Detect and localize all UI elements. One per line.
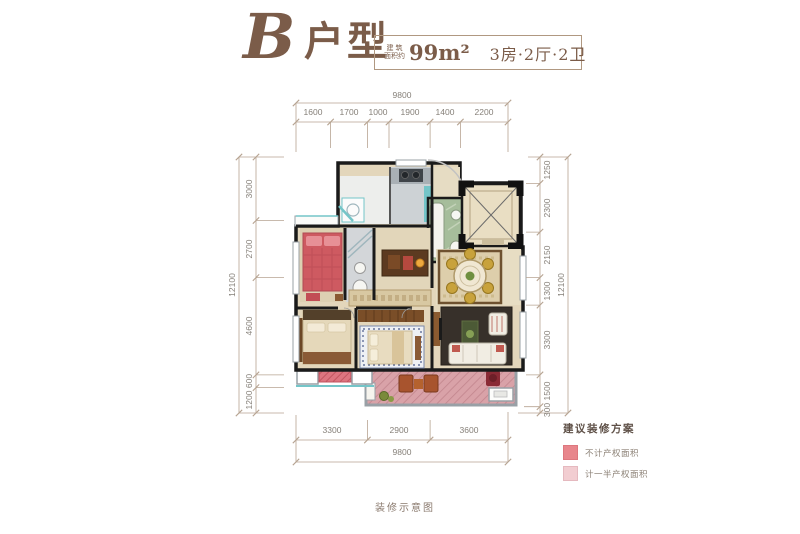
dim-top-seg: 2200 [466,107,502,117]
dim-top-seg: 1000 [360,107,396,117]
dim-right-seg: 3300 [542,320,552,360]
dim-top-total: 9800 [382,90,422,100]
dim-top-seg: 1900 [392,107,428,117]
bedroom-3 [358,310,424,368]
dim-right-total: 12100 [556,260,566,310]
no-property-area [319,371,351,382]
dim-left-seg: 1200 [244,380,254,420]
exterior-windows-and-flower-bed [296,371,374,386]
dim-bottom-seg: 2900 [381,425,417,435]
no-property-area-swatch [563,445,578,460]
dim-top-seg: 1600 [295,107,331,117]
plan-caption: 装修示意图 [345,499,465,514]
dim-bottom-total: 9800 [382,447,422,457]
legend-item: 不计产权面积 [563,445,648,460]
dim-left-total: 12100 [227,260,237,310]
legend-title: 建议装修方案 [563,421,648,436]
study [376,228,432,288]
balcony [366,368,516,405]
dim-right-seg: 1300 [542,271,552,311]
dim-right-seg: 2150 [542,235,552,275]
dim-left-seg: 2700 [244,229,254,269]
dim-bottom-seg: 3600 [451,425,487,435]
dim-bottom-seg: 3300 [314,425,350,435]
dim-left-seg: 3000 [244,169,254,209]
dim-left-seg: 4600 [244,306,254,346]
dim-right-seg: 1250 [542,150,552,190]
dining-room [436,249,521,306]
legend-item: 计一半产权面积 [563,466,648,481]
master-bedroom [300,228,344,302]
dim-right-seg: 2300 [542,188,552,228]
hallway-rug [349,290,431,306]
dim-top-seg: 1400 [427,107,463,117]
floorplan-page: B 户型 建 筑 面积约 99m² 3房·2厅·2卫 [0,0,800,534]
dim-right-seg: 300 [542,390,552,430]
kitchen [390,160,432,224]
legend-item-label: 不计产权面积 [585,447,639,459]
living-room [433,307,512,365]
decoration-legend: 建议装修方案 不计产权面积 计一半产权面积 [563,421,648,487]
laundry [339,176,390,224]
half-property-area-swatch [563,466,578,481]
bedroom-2 [298,310,351,364]
elevator [462,184,520,246]
legend-item-label: 计一半产权面积 [585,468,648,480]
